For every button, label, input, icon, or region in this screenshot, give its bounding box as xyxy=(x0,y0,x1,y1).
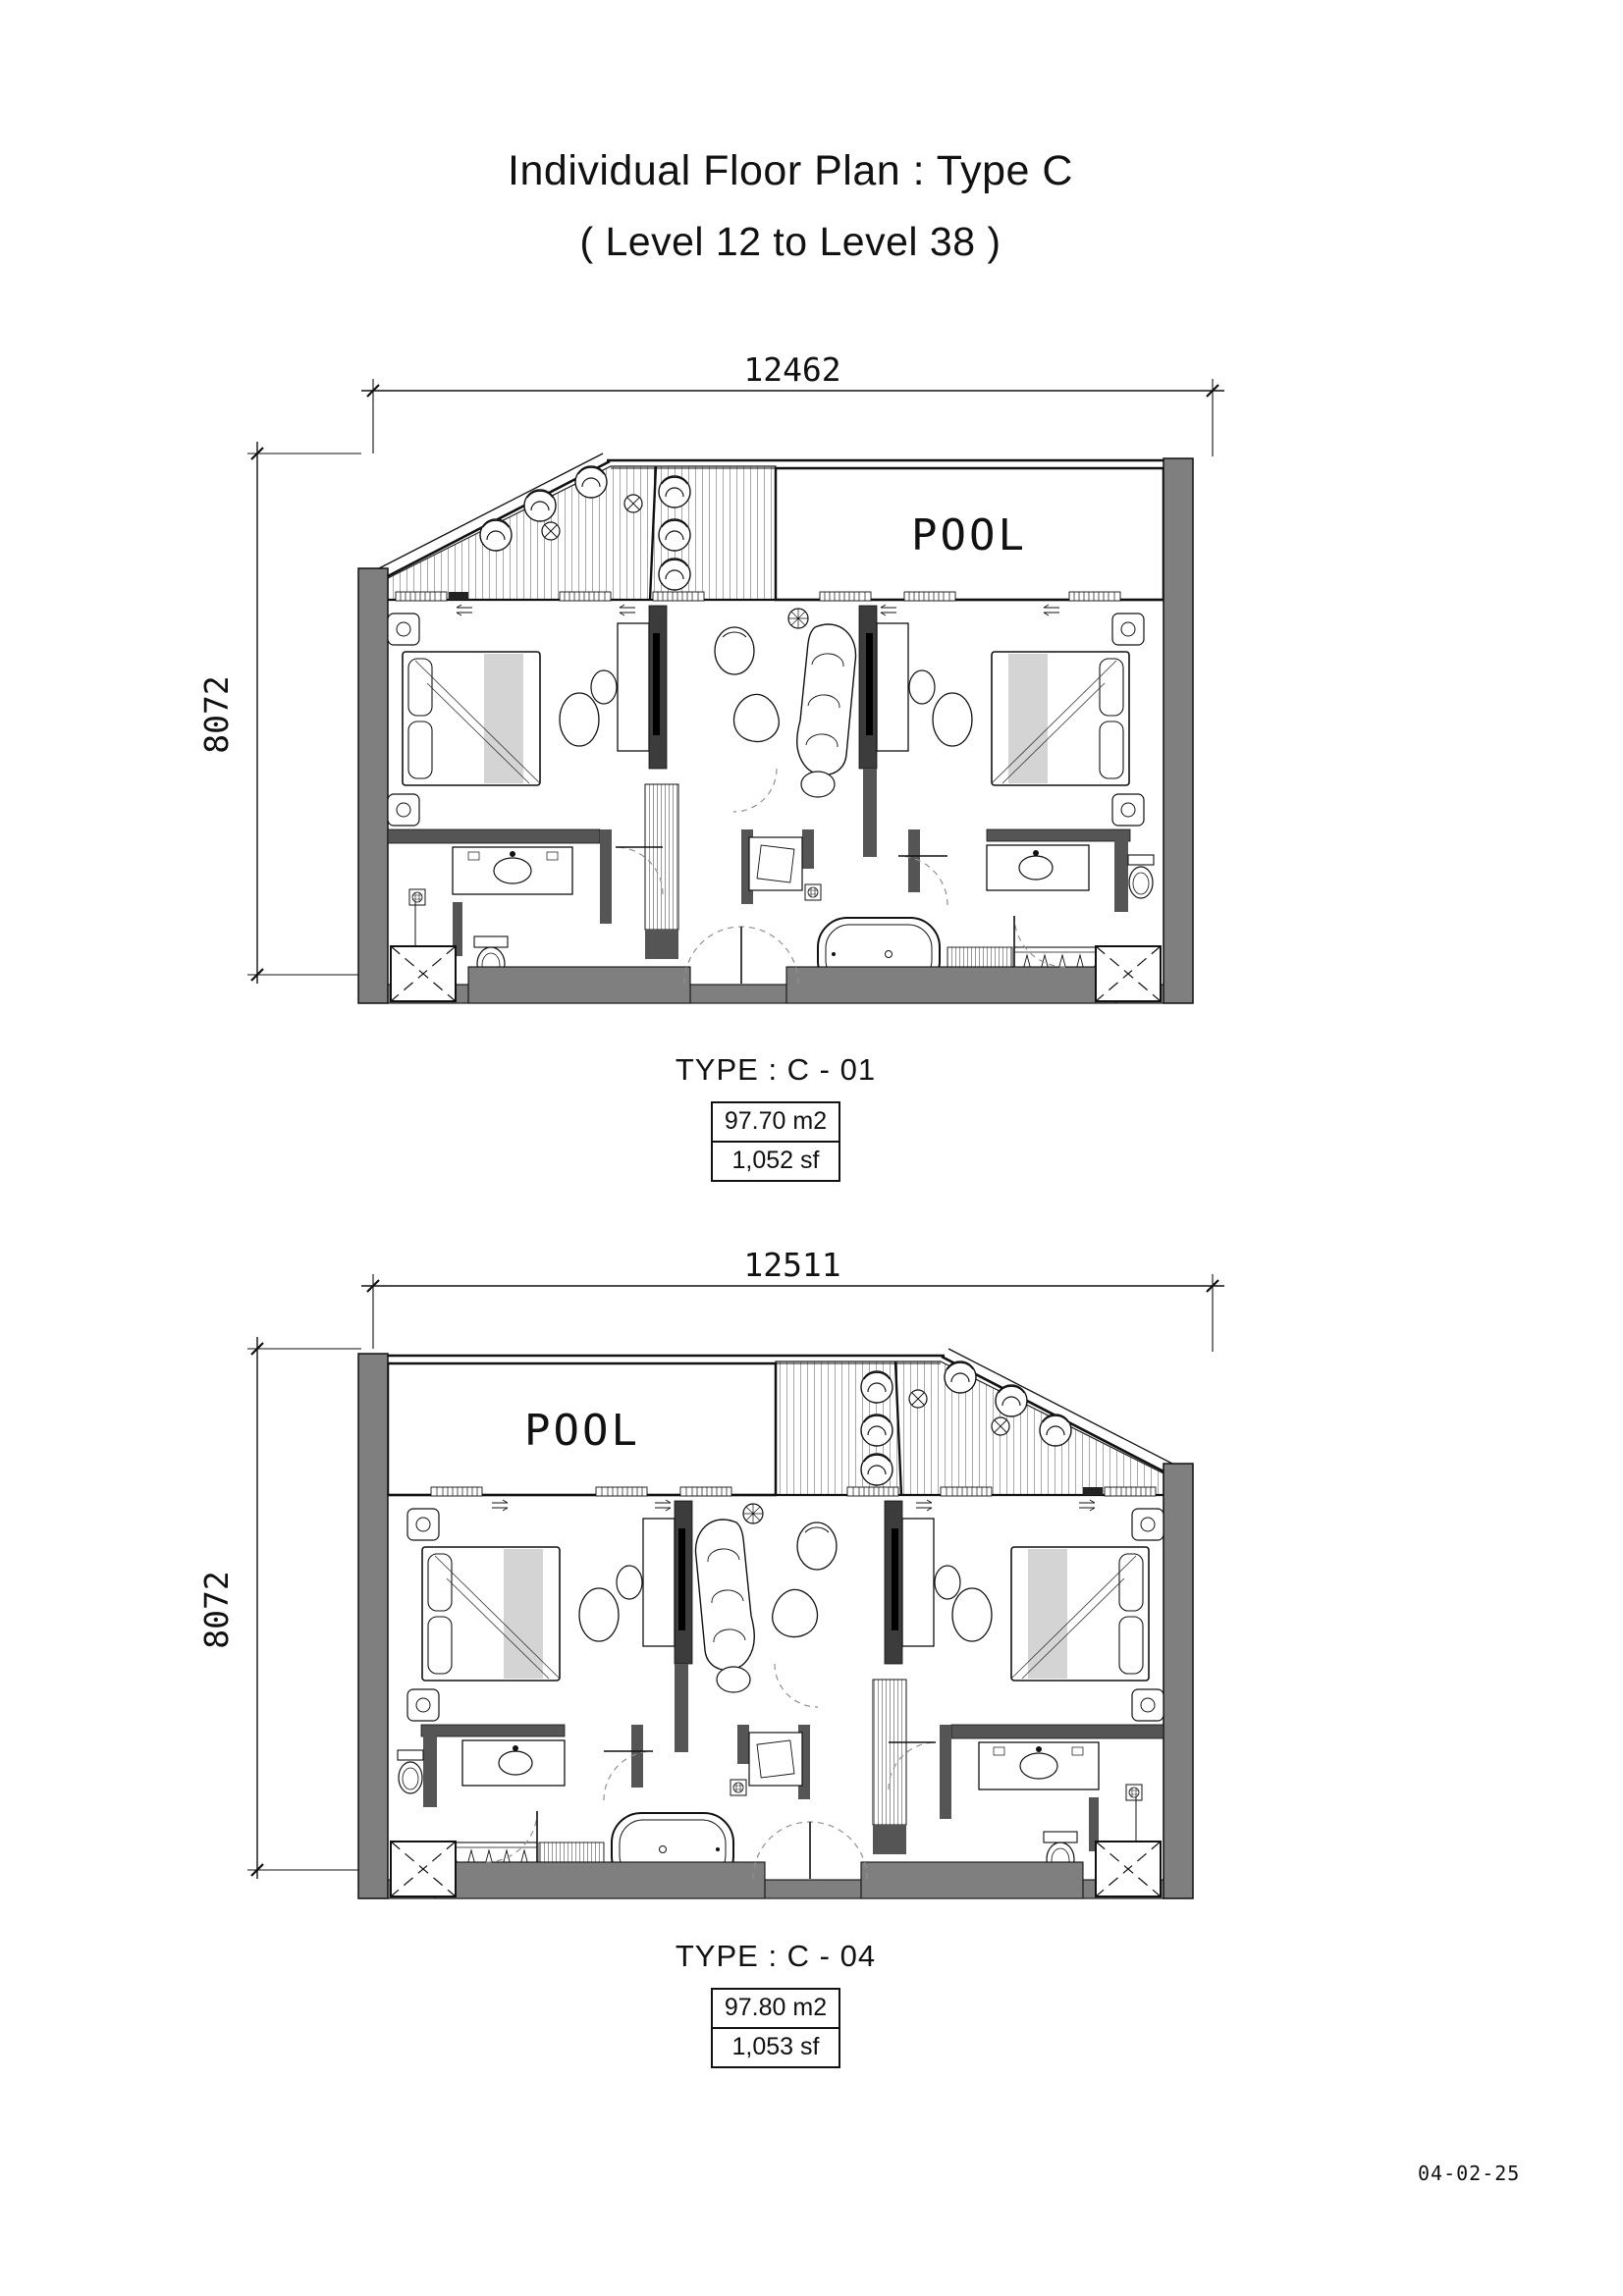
dimension-left: 8072 xyxy=(197,442,361,984)
building-c01 xyxy=(358,454,1193,1003)
plan-c01-caption: TYPE : C - 01 97.70 m2 1,052 sf xyxy=(515,1052,1036,1182)
plan-c04-caption: TYPE : C - 04 97.80 m2 1,053 sf xyxy=(515,1939,1036,2068)
area-sf: 1,052 sf xyxy=(713,1141,839,1180)
dimension-top: 12511 xyxy=(361,1246,1224,1352)
dimension-top: 12462 xyxy=(361,350,1224,456)
title-line-1: Individual Floor Plan : Type C xyxy=(0,147,1581,195)
floor-plan-c04: 12511 8072 POOL xyxy=(196,1239,1237,1916)
page: Individual Floor Plan : Type C ( Level 1… xyxy=(0,0,1623,2296)
title-line-2: ( Level 12 to Level 38 ) xyxy=(0,219,1581,265)
height-dimension-label: 8072 xyxy=(197,1571,236,1648)
pool-label: POOL xyxy=(911,510,1027,561)
title-block: Individual Floor Plan : Type C ( Level 1… xyxy=(0,147,1581,265)
building-c04 xyxy=(358,1349,1193,1898)
pool-label: POOL xyxy=(524,1406,640,1456)
type-label-c01: TYPE : C - 01 xyxy=(515,1052,1036,1088)
dimension-left: 8072 xyxy=(197,1337,361,1879)
area-box-c04: 97.80 m2 1,053 sf xyxy=(711,1988,840,2068)
date-stamp: 04-02-25 xyxy=(1418,2162,1520,2185)
floor-plan-c01: 12462 8072 POOL xyxy=(196,344,1237,1021)
area-sf: 1,053 sf xyxy=(713,2027,839,2066)
area-box-c01: 97.70 m2 1,052 sf xyxy=(711,1101,840,1182)
height-dimension-label: 8072 xyxy=(197,675,236,753)
width-dimension-label: 12462 xyxy=(743,350,840,389)
area-m2: 97.70 m2 xyxy=(713,1103,839,1141)
area-m2: 97.80 m2 xyxy=(713,1990,839,2027)
type-label-c04: TYPE : C - 04 xyxy=(515,1939,1036,1974)
width-dimension-label: 12511 xyxy=(743,1246,840,1284)
